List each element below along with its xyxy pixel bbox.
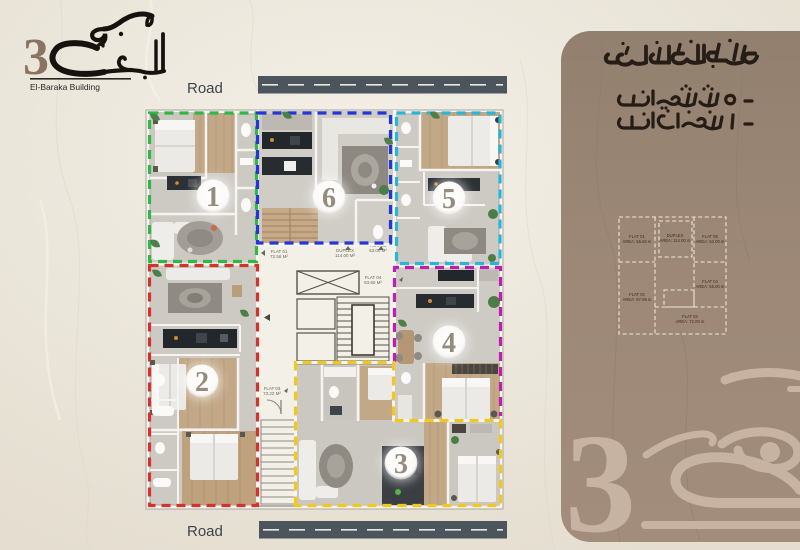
svg-text:4: 4 xyxy=(442,328,456,359)
svg-text:114.00 M²: 114.00 M² xyxy=(335,253,355,258)
svg-text:AREA: 72.00 m: AREA: 72.00 m xyxy=(676,319,705,324)
svg-text:3: 3 xyxy=(394,449,408,480)
svg-text:Road: Road xyxy=(187,523,223,540)
svg-text:1: 1 xyxy=(206,182,220,213)
svg-text:72.56 M²: 72.56 M² xyxy=(270,254,288,259)
svg-text:AREA: 55.66 m: AREA: 55.66 m xyxy=(623,239,652,244)
svg-text:Road: Road xyxy=(187,80,223,97)
svg-text:73.22 M²: 73.22 M² xyxy=(263,391,281,396)
svg-text:AREA: 97.96 m: AREA: 97.96 m xyxy=(623,297,652,302)
svg-text:AREA: 53.00 m: AREA: 53.00 m xyxy=(696,239,725,244)
svg-text:3: 3 xyxy=(565,404,636,550)
svg-text:AREA: 55.00 m: AREA: 55.00 m xyxy=(696,284,725,289)
svg-text:3: 3 xyxy=(23,29,49,86)
svg-text:AREA: 114.00 m: AREA: 114.00 m xyxy=(660,238,691,243)
svg-text:2: 2 xyxy=(195,367,209,398)
svg-text:El-Baraka Building: El-Baraka Building xyxy=(30,82,100,92)
svg-text:6: 6 xyxy=(322,183,336,214)
svg-text:53.60 M²: 53.60 M² xyxy=(364,280,382,285)
svg-text:53.00 M²: 53.00 M² xyxy=(369,248,387,253)
svg-text:5: 5 xyxy=(442,184,456,215)
